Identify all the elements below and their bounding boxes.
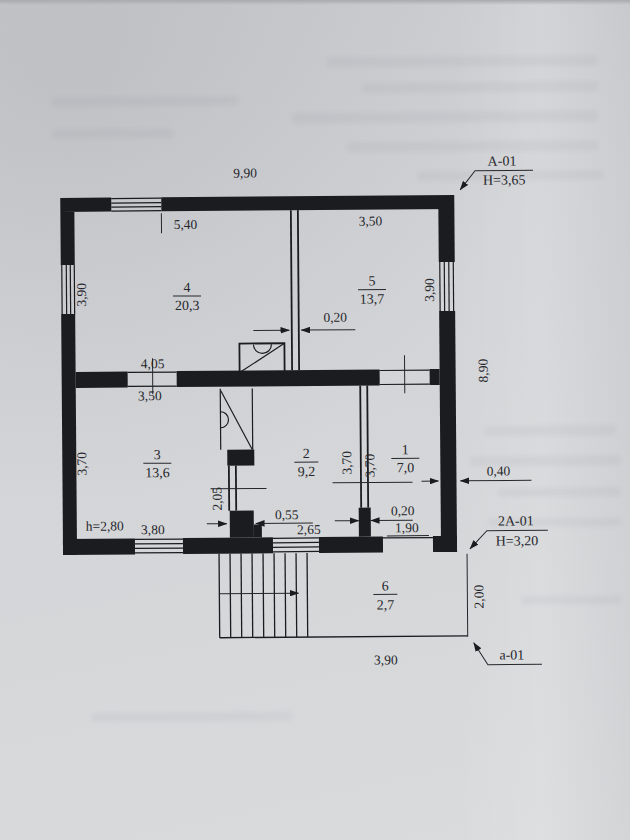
dim-mid-opening: 4,05 [141, 356, 165, 371]
dim-overall-depth: 8,90 [476, 359, 491, 383]
room-2-number: 2 [303, 446, 310, 461]
dim-room1-depth: 3,70 [362, 453, 377, 477]
dim-overall-width: 9,90 [233, 165, 257, 180]
marker-2a01-label: 2A-01 [498, 513, 534, 528]
dim-room2-depth: 3,70 [339, 451, 354, 475]
partition-4-5 [291, 210, 299, 370]
dim-room3-width: 3,50 [138, 388, 162, 403]
stairs [219, 552, 468, 639]
marker-a01-top-label: A-01 [488, 153, 517, 168]
room-1-number: 1 [402, 442, 409, 457]
dim-stair-wall: 2,05 [210, 487, 225, 511]
note-ceiling-height: h=2,80 [86, 519, 124, 534]
porch-outline [220, 636, 468, 638]
room-3-number: 3 [154, 447, 161, 462]
room-4-number: 4 [183, 280, 190, 295]
room-3-area: 13,6 [145, 465, 170, 480]
dim-window-left-bottom: 3,80 [141, 522, 165, 537]
dim-room3-depth: 3,70 [74, 452, 89, 476]
room-1-area: 7,0 [397, 460, 415, 475]
stove-icon [239, 343, 284, 372]
chimney-block [227, 449, 254, 465]
dim-pier-width: 0,55 [275, 507, 299, 522]
room-5-number: 5 [368, 274, 375, 289]
window-left [62, 265, 75, 314]
marker-a01-top-height: H=3,65 [483, 172, 526, 187]
pier-block [230, 510, 254, 537]
room-6-area: 2,7 [377, 597, 395, 612]
dim-door-bottom: 1,90 [395, 520, 419, 535]
dim-porch-depth: 2,00 [471, 585, 486, 609]
window-right [440, 262, 454, 311]
dim-partition-2-1: 0,20 [391, 503, 415, 518]
dim-top-window: 5,40 [174, 217, 198, 232]
room-6-number: 6 [382, 578, 389, 593]
dim-left-window: 3,90 [74, 283, 89, 307]
door-swing-icon [220, 390, 252, 449]
dim-partition-4-5: 0,20 [323, 310, 347, 325]
dim-room5-top: 3,50 [359, 213, 383, 228]
floor-plan-photo: 4 20,3 5 13,7 3 13,6 2 9,2 1 7,0 6 2,7 9… [0, 0, 630, 840]
dim-window-mid-bottom: 2,65 [297, 522, 321, 537]
marker-2a01-height: H=3,20 [496, 533, 539, 548]
window-top [111, 198, 161, 211]
stair-direction-arrow [219, 593, 298, 594]
partition-3-2 [220, 388, 262, 537]
dim-right-window: 3,90 [422, 278, 437, 302]
marker-a01-bottom-label: a-01 [499, 647, 524, 662]
room-5-area: 13,7 [360, 291, 385, 306]
room-2-area: 9,2 [298, 464, 316, 479]
window-bottom-middle [273, 538, 319, 552]
floor-plan-drawing: 4 20,3 5 13,7 3 13,6 2 9,2 1 7,0 6 2,7 9… [0, 0, 630, 840]
window-bottom-left [135, 539, 183, 553]
dim-right-wall: 0,40 [487, 463, 511, 478]
room-4-area: 20,3 [175, 298, 200, 313]
dim-porch-width: 3,90 [374, 652, 398, 667]
